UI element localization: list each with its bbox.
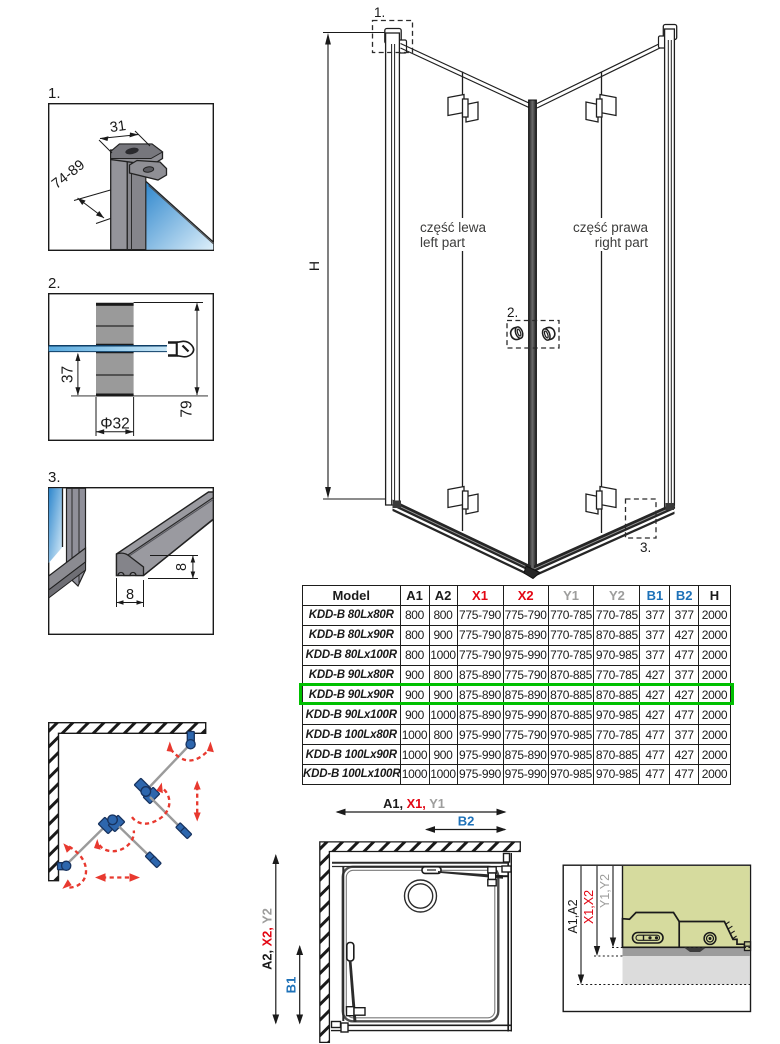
svg-text:X1,X2: X1,X2 [582,890,596,924]
svg-text:Φ32: Φ32 [100,416,130,433]
svg-text:część lewa: część lewa [420,220,487,235]
svg-text:B2: B2 [458,814,475,829]
svg-text:1.: 1. [374,5,385,20]
svg-text:3.: 3. [48,469,61,486]
svg-text:A1,A2: A1,A2 [566,899,580,933]
svg-text:Y1,Y2: Y1,Y2 [598,874,612,908]
svg-text:część prawa: część prawa [573,220,649,235]
svg-text:3.: 3. [640,540,651,555]
svg-text:2.: 2. [507,305,518,320]
svg-text:A1, X1, Y1: A1, X1, Y1 [383,796,445,811]
svg-text:79: 79 [179,400,196,417]
svg-text:A2, X2, Y2: A2, X2, Y2 [260,908,275,970]
svg-text:H: H [306,261,322,271]
svg-text:right part: right part [595,235,649,250]
svg-text:31: 31 [109,118,127,136]
svg-text:1.: 1. [48,85,61,102]
svg-text:2.: 2. [48,275,61,292]
svg-text:8: 8 [126,587,134,603]
svg-text:8: 8 [174,563,190,571]
svg-text:left part: left part [420,235,465,250]
svg-text:37: 37 [60,366,77,383]
svg-text:B1: B1 [284,977,299,994]
